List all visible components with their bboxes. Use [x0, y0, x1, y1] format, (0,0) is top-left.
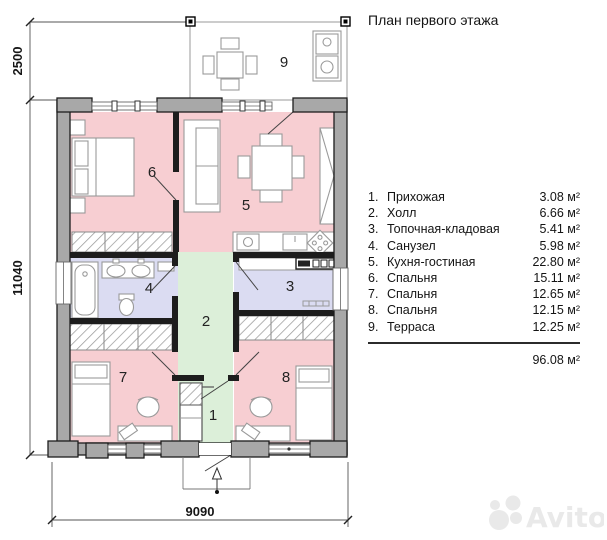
entry-door-opening [199, 443, 231, 455]
legend-room-name: Спальня [387, 286, 532, 302]
legend-room-number: 4. [368, 238, 387, 254]
legend-row: 7. Спальня 12.65 м² [368, 286, 580, 302]
legend-room-number: 2. [368, 205, 387, 221]
legend-room-area: 12.65 м² [532, 286, 580, 302]
legend-room-area: 22.80 м² [532, 254, 580, 270]
legend-row: 3. Топочная-кладовая 5.41 м² [368, 221, 580, 237]
room-8-wardrobe-icon [239, 316, 334, 340]
legend-room-area: 5.41 м² [539, 221, 580, 237]
room-label-5: 5 [242, 197, 250, 214]
legend-room-name: Спальня [387, 270, 533, 286]
terrace [186, 17, 350, 100]
toilet-icon [119, 294, 134, 316]
window-icon [333, 268, 348, 310]
entrance-arrow-icon [213, 468, 222, 494]
avito-watermark: Avito [486, 494, 604, 534]
avito-watermark-text: Avito [526, 501, 604, 534]
legend-room-name: Спальня [387, 302, 532, 318]
window-icon [269, 445, 310, 453]
legend-room-name: Терраса [387, 319, 532, 335]
legend-row: 2. Холл 6.66 м² [368, 205, 580, 221]
legend-row: 5. Кухня-гостиная 22.80 м² [368, 254, 580, 270]
legend-row: 6. Спальня 15.11 м² [368, 270, 580, 286]
legend-room-name: Санузел [387, 238, 539, 254]
bathtub-icon [72, 262, 98, 318]
legend-divider [368, 342, 580, 344]
avito-logo-icon [489, 496, 522, 531]
double-bed-icon [72, 138, 134, 196]
dimension-bottom: 9090 [186, 504, 215, 519]
legend-room-area: 6.66 м² [539, 205, 580, 221]
legend-room-area: 3.08 м² [539, 189, 580, 205]
room-label-1: 1 [209, 407, 217, 424]
legend-row: 9. Терраса 12.25 м² [368, 319, 580, 335]
window-icon [92, 101, 157, 111]
nightstand-icon [70, 120, 85, 135]
legend-room-name: Прихожая [387, 189, 539, 205]
terrace-grill-icon [313, 31, 341, 81]
window-icon [108, 445, 126, 453]
dimension-left: 11040 [10, 260, 25, 295]
entry-door-leaf [205, 455, 231, 471]
legend-room-area: 12.15 м² [532, 302, 580, 318]
legend-room-number: 7. [368, 286, 387, 302]
desk-chair-icon [250, 397, 272, 417]
legend-room-name: Топочная-кладовая [387, 221, 539, 237]
page-title: План первого этажа [368, 12, 498, 28]
room-label-7: 7 [119, 369, 127, 386]
single-bed-icon [296, 366, 332, 440]
double-sink-icon [102, 259, 154, 278]
single-bed-icon [72, 362, 110, 436]
room-label-6: 6 [148, 164, 156, 181]
legend-room-number: 3. [368, 221, 387, 237]
legend-room-area: 5.98 м² [539, 238, 580, 254]
room-label-8: 8 [282, 369, 290, 386]
legend-total-area: 96.08 м² [368, 353, 580, 367]
room-7-wardrobe-icon [70, 324, 172, 350]
room-legend: 1. Прихожая 3.08 м² 2. Холл 6.66 м² 3. Т… [368, 189, 580, 367]
legend-room-number: 8. [368, 302, 387, 318]
legend-row: 8. Спальня 12.15 м² [368, 302, 580, 318]
legend-room-name: Холл [387, 205, 539, 221]
room-label-2: 2 [202, 313, 210, 330]
boiler-panel-icon [296, 258, 334, 269]
room-label-4: 4 [145, 280, 153, 297]
legend-room-number: 6. [368, 270, 387, 286]
desk-chair-icon [137, 397, 159, 417]
legend-room-number: 5. [368, 254, 387, 270]
legend-room-number: 1. [368, 189, 387, 205]
legend-room-area: 15.11 м² [533, 270, 580, 286]
sofa-icon [184, 120, 220, 212]
legend-room-area: 12.25 м² [532, 319, 580, 335]
kitchen-counter-icon [233, 230, 334, 255]
legend-room-number: 9. [368, 319, 387, 335]
window-icon [144, 445, 161, 453]
legend-row: 4. Санузел 5.98 м² [368, 238, 580, 254]
room-label-9: 9 [280, 54, 288, 71]
tall-cabinet-icon [320, 128, 334, 224]
legend-row: 1. Прихожая 3.08 м² [368, 189, 580, 205]
nightstand-icon [70, 198, 85, 213]
room-label-3: 3 [286, 278, 294, 295]
room-6-wardrobe-icon [72, 232, 172, 252]
window-icon [56, 262, 71, 304]
dimension-top-left: 2500 [10, 47, 25, 76]
floor-plan-page: 2500 11040 9090 [0, 0, 607, 540]
legend-room-name: Кухня-гостиная [387, 254, 532, 270]
window-icon [222, 101, 272, 111]
